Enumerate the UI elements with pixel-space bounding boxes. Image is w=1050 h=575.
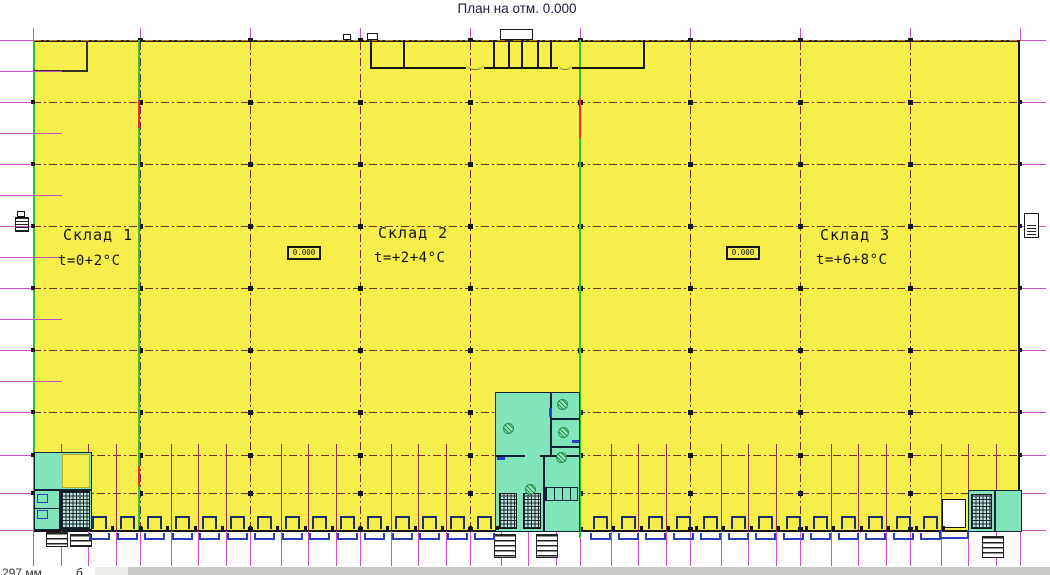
annex-wall	[572, 67, 643, 69]
dock-tick	[942, 526, 945, 530]
column-marker	[1018, 100, 1022, 104]
column-marker	[31, 348, 35, 352]
dock-shelter	[89, 533, 110, 540]
column-marker	[798, 453, 803, 458]
dock-leveler	[340, 516, 355, 529]
stair-core	[971, 494, 992, 529]
grid-stub-h	[0, 133, 62, 134]
annex-wall	[550, 40, 552, 69]
column-marker	[358, 491, 363, 496]
column-marker	[468, 491, 473, 496]
dock-shelter	[474, 533, 495, 540]
exterior-stair	[46, 532, 68, 547]
dock-shelter	[419, 533, 440, 540]
dock-leveler	[813, 516, 828, 529]
dock-tick	[640, 526, 643, 530]
annex-wall	[493, 40, 495, 69]
zone-label-sklad2: Склад 2	[378, 224, 448, 242]
dock-tick	[887, 526, 890, 530]
grid-line-v	[470, 532, 471, 566]
column-marker	[798, 410, 803, 415]
dock-shelter	[939, 530, 969, 539]
elevation-marker: 0.000	[287, 246, 321, 260]
column-marker	[468, 38, 473, 42]
dock-tick	[860, 526, 863, 530]
annex-wall	[370, 40, 372, 69]
dock-tick	[249, 526, 252, 530]
column-marker	[358, 286, 363, 291]
grid-line-h	[1022, 164, 1046, 165]
grid-minor-v	[308, 444, 309, 530]
column-marker	[468, 162, 473, 167]
grid-minor-v	[446, 444, 447, 530]
alarm-segment	[579, 98, 581, 138]
dock-leveler	[147, 516, 162, 529]
annex-wall	[484, 67, 558, 69]
grid-minor-v	[748, 444, 749, 530]
column-marker	[248, 286, 253, 291]
dock-tick	[276, 526, 279, 530]
column-marker	[358, 410, 363, 415]
column-marker	[688, 410, 693, 415]
dock-shelter	[227, 533, 248, 540]
stair-core	[523, 493, 541, 529]
grid-line-h	[1022, 530, 1046, 531]
fan-symbol	[525, 484, 536, 495]
column-marker	[31, 162, 35, 166]
dock-shelter	[645, 533, 666, 540]
column-marker	[1018, 162, 1022, 166]
dock-shelter	[673, 533, 694, 540]
dock-leveler	[120, 516, 135, 529]
column-marker	[248, 38, 253, 42]
column-marker	[798, 38, 803, 42]
window-edge-strip	[95, 567, 128, 575]
dock-leveler	[758, 516, 773, 529]
column-marker	[908, 162, 913, 167]
grid-line-h	[0, 412, 33, 413]
fan-symbol	[503, 423, 514, 434]
service-room	[62, 454, 90, 488]
window-edge-strip	[128, 567, 1050, 575]
grid-line-h	[33, 102, 1022, 103]
grid-minor-v	[391, 444, 392, 530]
grid-stub-h	[0, 381, 62, 382]
fixture	[37, 494, 48, 503]
grid-line-h	[0, 530, 33, 531]
grid-line-h	[0, 493, 33, 494]
door-mark	[497, 457, 505, 460]
column-marker	[688, 491, 693, 496]
grid-line-h	[1022, 412, 1046, 413]
column-marker	[688, 38, 693, 42]
dock-shelter	[920, 533, 941, 540]
grid-minor-v	[418, 444, 419, 530]
dock-tick	[414, 526, 417, 530]
dock-shelter	[893, 533, 914, 540]
dock-tick	[805, 526, 808, 530]
grid-line-h	[33, 164, 1022, 165]
top-wall-axis	[33, 40, 1022, 41]
column-marker	[688, 100, 693, 105]
dock-leveler	[422, 516, 437, 529]
dock-leveler	[230, 516, 245, 529]
dock-tick	[111, 526, 114, 530]
grid-line-v	[140, 532, 141, 566]
column-marker	[1018, 410, 1022, 414]
fan-symbol	[557, 399, 568, 410]
exterior-stair	[494, 534, 516, 558]
dock-shelter	[309, 533, 330, 540]
grid-line-h	[1022, 350, 1046, 351]
grid-minor-v	[858, 444, 859, 530]
footer-paper-size-fragment: 297 мм	[2, 566, 42, 575]
column-marker	[1018, 224, 1022, 228]
grid-minor-v	[831, 444, 832, 530]
dock-leveler	[731, 516, 746, 529]
door-mark	[549, 408, 552, 417]
grid-line-h	[33, 288, 1022, 289]
dock-leveler	[868, 516, 883, 529]
corner-notch	[33, 40, 88, 72]
column-marker	[1018, 348, 1022, 352]
dock-tick	[832, 526, 835, 530]
dock-shelter	[282, 533, 303, 540]
cad-floor-plan-view: План на отм. 0.000 Склад 1 t=0+2°C Склад…	[0, 0, 1050, 575]
grid-minor-v	[776, 444, 777, 530]
dock-leveler	[648, 516, 663, 529]
column-marker	[468, 410, 473, 415]
grid-line-h	[0, 102, 33, 103]
column-marker	[248, 491, 253, 496]
dock-tick	[304, 526, 307, 530]
dock-leveler	[312, 516, 327, 529]
exterior-stair	[982, 536, 1004, 558]
column-marker	[798, 100, 803, 105]
dock-shelter	[865, 533, 886, 540]
column-marker	[248, 224, 253, 229]
stair-core	[499, 493, 517, 529]
dock-tick	[139, 526, 142, 530]
plan-drawing	[0, 0, 1050, 575]
column-marker	[248, 162, 253, 167]
dock-shelter	[337, 533, 358, 540]
column-marker	[31, 224, 35, 228]
dock-leveler	[257, 516, 272, 529]
dock-shelter	[728, 533, 749, 540]
column-marker	[1018, 286, 1022, 290]
column-marker	[798, 162, 803, 167]
dock-tick	[331, 526, 334, 530]
annex-wall	[643, 40, 645, 69]
exterior-ladder	[1027, 224, 1036, 235]
exterior-ladder	[15, 217, 29, 232]
column-marker	[688, 348, 693, 353]
column-marker	[688, 224, 693, 229]
grid-line-h	[0, 164, 33, 165]
column-marker	[358, 453, 363, 458]
gate-box	[942, 499, 966, 528]
dock-leveler	[786, 516, 801, 529]
dock-shelter	[590, 533, 611, 540]
dock-leveler	[202, 516, 217, 529]
dock-shelter	[618, 533, 639, 540]
annex-wall	[521, 40, 523, 69]
dock-shelter	[172, 533, 193, 540]
column-marker	[358, 100, 363, 105]
dock-leveler	[676, 516, 691, 529]
dock-leveler	[896, 516, 911, 529]
door-mark	[572, 440, 579, 443]
column-marker	[31, 286, 35, 290]
zone-label-sklad3: Склад 3	[820, 226, 890, 244]
column-marker	[468, 453, 473, 458]
column-marker	[358, 224, 363, 229]
grid-minor-v	[611, 444, 612, 530]
dock-tick	[612, 526, 615, 530]
fixture	[37, 510, 48, 519]
column-marker	[468, 100, 473, 105]
column-marker	[798, 286, 803, 291]
grid-minor-v	[638, 444, 639, 530]
grid-line-h	[0, 288, 33, 289]
grid-line-v	[1020, 28, 1021, 40]
stair-core	[61, 491, 90, 529]
dock-shelter	[700, 533, 721, 540]
fan-symbol	[558, 427, 569, 438]
dock-shelter	[144, 533, 165, 540]
column-marker	[248, 348, 253, 353]
column-marker	[248, 453, 253, 458]
dock-tick	[441, 526, 444, 530]
column-marker	[248, 410, 253, 415]
column-marker	[908, 410, 913, 415]
dock-tick	[359, 526, 362, 530]
grid-minor-v	[226, 444, 227, 530]
toilet-row	[545, 487, 578, 501]
column-marker	[798, 491, 803, 496]
grid-line-h	[0, 40, 33, 41]
dock-leveler	[923, 516, 938, 529]
dock-shelter	[199, 533, 220, 540]
dock-tick	[166, 526, 169, 530]
dock-shelter	[117, 533, 138, 540]
grid-minor-v	[528, 531, 529, 566]
grid-line-h	[1022, 288, 1046, 289]
column-marker	[908, 491, 913, 496]
dock-leveler	[477, 516, 492, 529]
interior-wall	[34, 508, 59, 509]
grid-stub-h	[0, 71, 62, 72]
grid-minor-v	[721, 444, 722, 530]
grid-line-h	[1022, 102, 1046, 103]
grid-line-v	[250, 532, 251, 566]
dock-tick	[915, 526, 918, 530]
grid-minor-v	[886, 444, 887, 530]
fan-symbol	[556, 452, 567, 463]
column-marker	[688, 453, 693, 458]
exterior-stair	[536, 534, 558, 558]
column-marker	[358, 162, 363, 167]
dock-shelter	[254, 533, 275, 540]
dock-tick	[496, 526, 499, 530]
dock-leveler	[621, 516, 636, 529]
grid-stub-h	[0, 257, 62, 258]
column-marker	[31, 100, 35, 104]
column-marker	[358, 38, 363, 42]
column-marker	[908, 453, 913, 458]
column-marker	[798, 224, 803, 229]
grid-line-v	[360, 532, 361, 566]
grid-line-h	[1022, 455, 1046, 456]
roof-structure	[500, 29, 533, 40]
dock-tick	[750, 526, 753, 530]
column-marker	[688, 286, 693, 291]
roof-structure	[367, 33, 378, 40]
dock-tick	[221, 526, 224, 530]
column-marker	[908, 286, 913, 291]
column-marker	[1018, 453, 1022, 457]
alarm-segment	[138, 100, 140, 128]
dock-tick	[386, 526, 389, 530]
dock-leveler	[285, 516, 300, 529]
dock-leveler	[175, 516, 190, 529]
grid-minor-v	[116, 444, 117, 530]
grid-line-h	[1022, 493, 1046, 494]
zone-temp-sklad2: t=+2+4°C	[374, 250, 445, 266]
dock-leveler	[450, 516, 465, 529]
column-marker	[31, 410, 35, 414]
interior-wall	[550, 418, 580, 420]
dock-shelter	[810, 533, 831, 540]
column-marker	[468, 286, 473, 291]
annex-wall	[508, 40, 510, 69]
grid-minor-v	[198, 444, 199, 530]
zone-temp-sklad1: t=0+2°C	[58, 253, 121, 269]
dock-shelter	[364, 533, 385, 540]
column-marker	[908, 100, 913, 105]
alarm-segment	[138, 466, 140, 486]
interior-wall	[550, 446, 580, 448]
annex-wall	[370, 67, 466, 69]
column-marker	[908, 348, 913, 353]
roof-structure	[343, 34, 351, 40]
grid-line-h	[0, 455, 33, 456]
zone-temp-sklad3: t=+6+8°C	[816, 252, 887, 268]
footer-text-fragment: б	[76, 566, 83, 575]
dock-leveler	[367, 516, 382, 529]
column-marker	[248, 100, 253, 105]
column-marker	[468, 224, 473, 229]
dock-leveler	[593, 516, 608, 529]
zone-label-sklad1: Склад 1	[63, 226, 133, 244]
grid-stub-h	[0, 195, 62, 196]
column-marker	[908, 224, 913, 229]
dock-leveler	[92, 516, 107, 529]
grid-minor-v	[281, 444, 282, 530]
dock-leveler	[395, 516, 410, 529]
grid-line-v	[33, 532, 34, 566]
dock-tick	[667, 526, 670, 530]
annex-wall	[537, 40, 539, 69]
interior-wall	[994, 490, 996, 532]
dock-tick	[695, 526, 698, 530]
column-marker	[688, 162, 693, 167]
grid-minor-v	[336, 444, 337, 530]
grid-line-v	[1020, 532, 1021, 566]
dock-leveler	[841, 516, 856, 529]
grid-minor-v	[171, 444, 172, 530]
dock-shelter	[392, 533, 413, 540]
grid-line-h	[33, 350, 1022, 351]
column-marker	[908, 38, 913, 42]
dock-shelter	[755, 533, 776, 540]
grid-line-h	[1022, 40, 1046, 41]
dock-tick	[722, 526, 725, 530]
elevation-marker: 0.000	[726, 246, 760, 260]
grid-line-h	[0, 350, 33, 351]
dock-tick	[469, 526, 472, 530]
dock-shelter	[838, 533, 859, 540]
grid-line-v	[33, 28, 34, 40]
dock-shelter	[447, 533, 468, 540]
annex-wall	[403, 40, 405, 69]
column-marker	[468, 348, 473, 353]
column-marker	[358, 348, 363, 353]
dock-shelter	[783, 533, 804, 540]
dock-tick	[777, 526, 780, 530]
column-marker	[798, 348, 803, 353]
grid-stub-h	[0, 319, 62, 320]
dock-leveler	[703, 516, 718, 529]
grid-minor-v	[666, 444, 667, 530]
dock-tick	[194, 526, 197, 530]
